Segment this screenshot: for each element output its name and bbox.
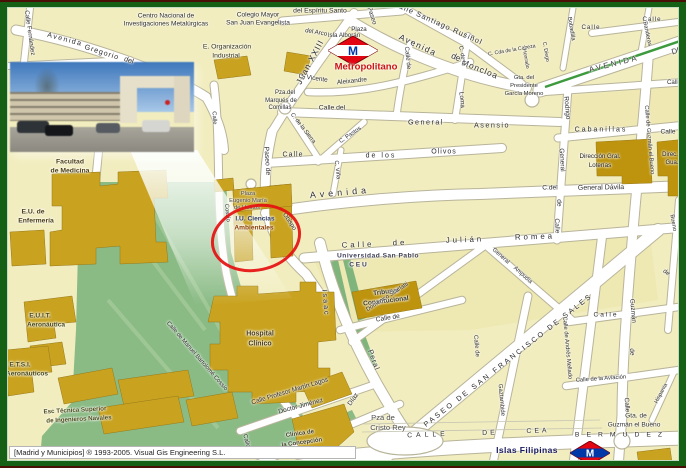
metro-station-islas-filipinas: Islas Filipinas <box>496 445 558 455</box>
enfermeria-building <box>10 230 46 266</box>
copyright-strip: [Madrid y Municipios] ® 1993-2005. Visua… <box>9 446 356 459</box>
photo-arch-tower-left <box>120 76 137 124</box>
photo-inset <box>10 62 194 152</box>
photo-car <box>17 121 48 133</box>
organizacion-industrial-building <box>214 56 251 79</box>
photo-traffic-sign <box>165 100 170 105</box>
glorieta-guzman-el-bueno <box>614 433 630 449</box>
metro-logo-islas-filipinas[interactable]: M <box>570 441 610 465</box>
photo-arch-tower-right <box>174 76 191 124</box>
plaza-marques-comillas <box>279 102 291 114</box>
photo-car <box>45 125 73 136</box>
metro-m-letter: M <box>586 449 594 460</box>
photo-car <box>96 123 120 133</box>
metro-m-letter: M <box>348 44 358 58</box>
glorieta-garcia-moreno <box>525 93 539 107</box>
map-canvas[interactable]: Centro Nacional deInvestigaciones Metalú… <box>0 0 686 468</box>
photo-building-slab <box>10 92 131 122</box>
photo-car <box>142 120 170 133</box>
plaza-hostos <box>246 179 256 189</box>
map-screenshot: Centro Nacional deInvestigaciones Metalú… <box>0 0 686 468</box>
metro-station-metropolitano: Metropolitano <box>335 62 398 73</box>
copyright-text: [Madrid y Municipios] ® 1993-2005. Visua… <box>14 448 225 457</box>
